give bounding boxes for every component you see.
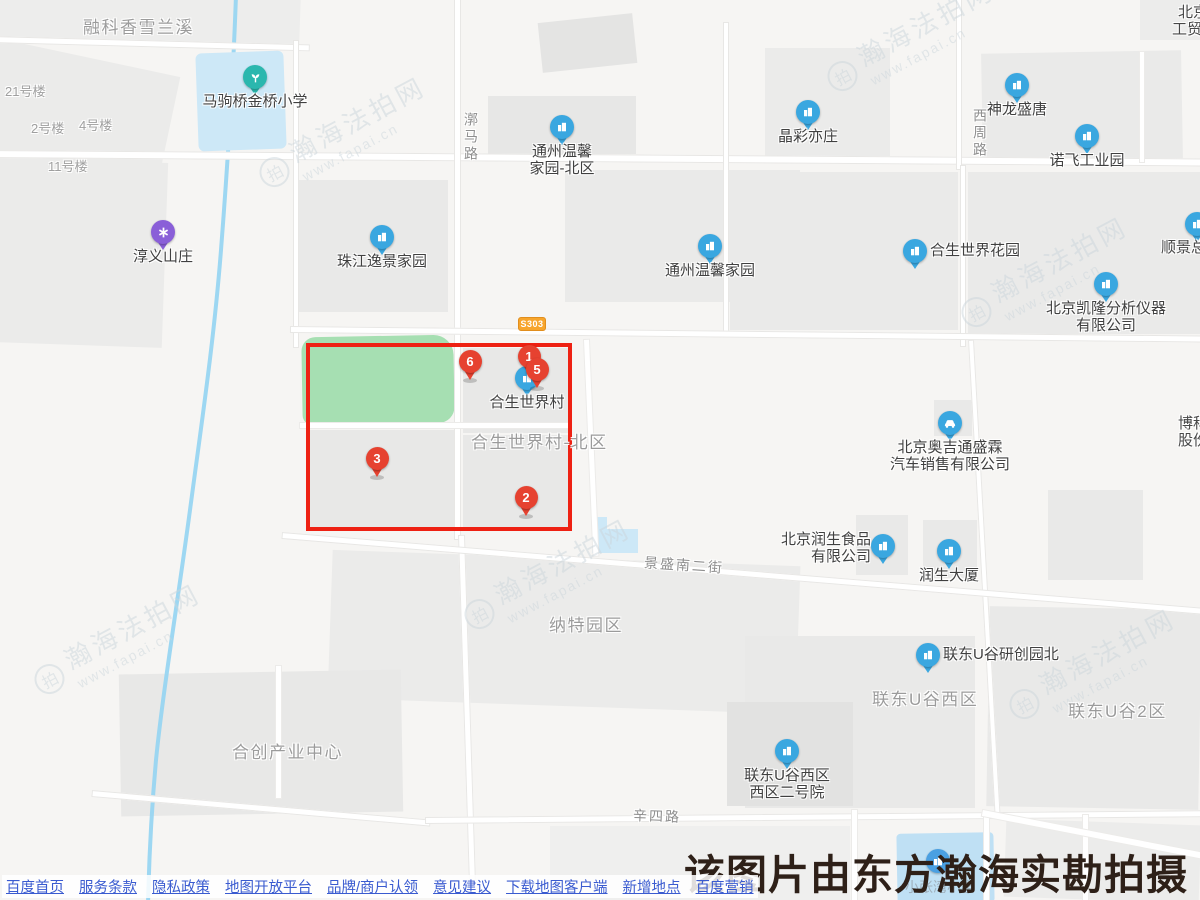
building-label-11: 11号楼: [48, 156, 88, 175]
road-label-huoma: 漷马路: [461, 112, 481, 163]
poi-label: 晶彩亦庄: [778, 128, 838, 145]
poi-label: 神龙盛唐: [987, 101, 1047, 118]
poi-label-shunjing: 顺景总部: [1161, 239, 1200, 256]
road-label-xinsi: 辛四路: [633, 805, 682, 827]
building-icon: [550, 115, 574, 139]
building-icon: [775, 739, 799, 763]
area-label-hesheng-north: 合生世界村-北区: [471, 428, 608, 453]
area-label-nate: 纳特园区: [549, 611, 623, 636]
poi-label: 北京润生食品 有限公司: [781, 531, 871, 565]
flower-icon: [151, 220, 175, 244]
building-label-4: 4号楼: [79, 115, 112, 134]
pin-number: 2: [515, 486, 538, 509]
poi-label: 珠江逸景家园: [337, 253, 427, 270]
pool: [592, 529, 638, 553]
footer-link-marketing[interactable]: 百度营销: [696, 876, 754, 897]
car-icon: [938, 411, 962, 435]
footer-link-download-app[interactable]: 下载地图客户端: [506, 876, 608, 897]
footer-link-brand-claim[interactable]: 品牌/商户认领: [327, 876, 418, 897]
road: [1140, 52, 1144, 162]
edge-label-beijing-gongmao: 北京 工贸: [1172, 4, 1200, 38]
edge-label-boke: 博科 股份: [1178, 415, 1200, 449]
poi-label: 联东U谷西区 西区二号院: [744, 767, 830, 801]
road: [293, 40, 299, 348]
pin-number: 6: [459, 350, 482, 373]
poi-label: 联东U谷研创园北: [943, 646, 1059, 663]
poi-label: 北京凯隆分析仪器 有限公司: [1046, 300, 1166, 334]
building-icon: [916, 643, 940, 667]
area-label-liandong-west: 联东U谷西区: [872, 685, 978, 710]
poi-label: 润生大厦: [919, 567, 979, 584]
pin-number: 3: [366, 447, 389, 470]
building-icon: [937, 539, 961, 563]
footer-link-add-place[interactable]: 新增地点: [623, 876, 681, 897]
footer-link-terms[interactable]: 服务条款: [79, 876, 137, 897]
footer-link-open-platform[interactable]: 地图开放平台: [225, 876, 312, 897]
poi-label: 北京奥吉通盛霖 汽车销售有限公司: [890, 439, 1010, 473]
poi-label: 通州温馨 家园-北区: [530, 143, 595, 177]
footer-links: 百度首页 服务条款 隐私政策 地图开放平台 品牌/商户认领 意见建议 下载地图客…: [2, 875, 758, 898]
building-icon: [370, 225, 394, 249]
poi-label: 马驹桥金桥小学: [202, 93, 307, 110]
building-icon: [796, 100, 820, 124]
area-label-hechuang: 合创产业中心: [232, 738, 343, 763]
building-icon: [1005, 73, 1029, 97]
map-canvas[interactable]: 拍 瀚海法拍网www.fapai.cn 拍 瀚海法拍网www.fapai.cn …: [0, 0, 1200, 900]
road: [276, 666, 281, 798]
road-shield-s303: S303: [518, 317, 546, 331]
poi-label: 合生世界花园: [930, 242, 1020, 259]
sprout-icon: [243, 65, 267, 89]
building-icon: [698, 234, 722, 258]
building-icon: [871, 534, 895, 558]
area-label-rongke: 融科香雪兰溪: [83, 13, 194, 38]
building-icon: [1075, 124, 1099, 148]
footer-link-feedback[interactable]: 意见建议: [433, 876, 491, 897]
poi-label: 通州温馨家园: [665, 262, 755, 279]
footer-link-privacy[interactable]: 隐私政策: [152, 876, 210, 897]
photo-credit-caption: 该图片由东方瀚海实勘拍摄: [684, 841, 1188, 900]
area-label-liandong-2: 联东U谷2区: [1068, 697, 1167, 722]
building-icon: [1094, 272, 1118, 296]
building-label-21: 21号楼: [5, 81, 45, 100]
building-label-2: 2号楼: [31, 118, 64, 137]
road: [723, 22, 729, 337]
poi-label: 合生世界村: [489, 394, 564, 411]
poi-label: 淳义山庄: [133, 248, 193, 265]
poi-label: 诺飞工业园: [1049, 152, 1124, 169]
footer-link-home[interactable]: 百度首页: [6, 876, 64, 897]
building-icon: [903, 239, 927, 263]
road-xizhou: [956, 0, 962, 170]
pin-number: 5: [526, 358, 549, 381]
